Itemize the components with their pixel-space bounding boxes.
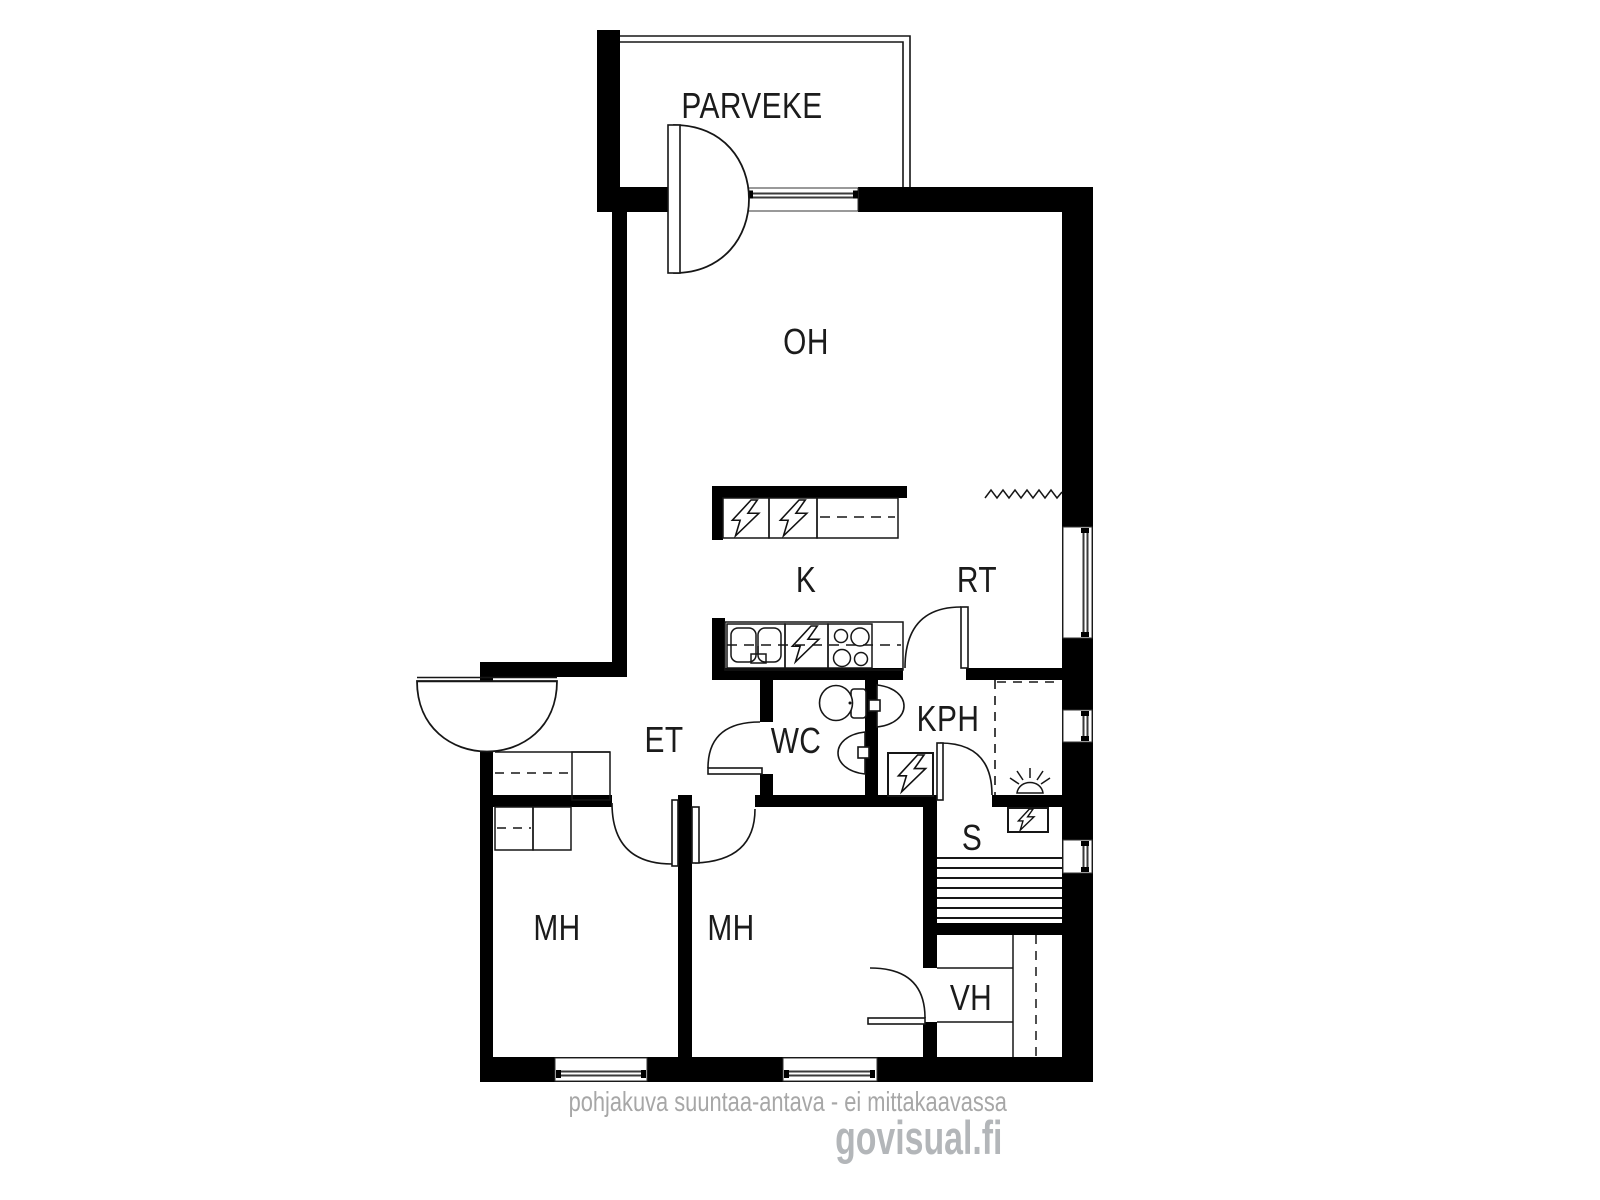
upper-cabinet-row — [712, 486, 907, 540]
toilet — [820, 686, 867, 721]
entrance-door — [417, 678, 557, 752]
cabinet — [817, 498, 898, 538]
electric-appliance-bolt-icon — [732, 500, 759, 536]
wall-vh-west-lower — [923, 1022, 937, 1057]
wall-s-west — [923, 795, 937, 968]
counter-row — [712, 618, 903, 670]
dishwasher — [785, 624, 828, 668]
wall-top-left — [597, 187, 670, 212]
wall-s-vh — [923, 923, 1062, 935]
kitchen-sink — [727, 624, 785, 668]
electric-appliance-bolt-icon — [792, 626, 819, 662]
floor-plan-page: PARVEKE OH K RT ET WC KPH S MH MH VH poh… — [0, 0, 1600, 1200]
wall-wc-west-upper — [760, 677, 773, 722]
balcony-door — [668, 125, 749, 273]
sauna-stove — [1008, 808, 1048, 832]
electric-appliance-bolt-icon — [1018, 809, 1034, 830]
room-label-et: ET — [644, 719, 683, 761]
wall-rt-kph — [966, 668, 1062, 680]
wall-wc-kph — [865, 677, 878, 802]
room-label-vh: VH — [950, 977, 992, 1019]
room-label-s: S — [962, 817, 982, 859]
room-label-k: K — [796, 559, 816, 601]
sauna-benches — [937, 858, 1062, 918]
rt-door — [905, 607, 968, 668]
radiator-zigzag-icon — [985, 490, 1062, 498]
room-label-wc: WC — [771, 720, 822, 762]
washing-machine — [888, 753, 933, 796]
mh-left-door — [612, 800, 678, 866]
electric-appliance-bolt-icon — [780, 500, 807, 536]
window-right-2 — [1063, 710, 1092, 742]
wall-mh-divider — [678, 795, 692, 1057]
room-label-oh: OH — [783, 321, 829, 363]
wall-oh-left — [612, 187, 627, 677]
stove — [828, 624, 872, 668]
wall-entry — [480, 662, 627, 677]
room-label-rt: RT — [957, 559, 997, 601]
window-bottom-2 — [783, 1058, 877, 1081]
window-right-3 — [1063, 840, 1092, 873]
room-label-kph: KPH — [917, 698, 980, 740]
window-bottom-1 — [555, 1058, 647, 1081]
doors — [417, 125, 992, 1024]
mh-right-door — [692, 807, 755, 863]
wall-hall-south-a — [493, 795, 612, 807]
wall-top-right — [858, 187, 1093, 212]
wall-balcony-left — [597, 30, 620, 190]
brand-logo: govisual.fi — [835, 1110, 1002, 1165]
window-top — [747, 188, 858, 211]
floor-drain-icon — [1010, 768, 1050, 793]
wall-hall-south-c — [992, 795, 1062, 807]
room-label-parveke: PARVEKE — [681, 85, 822, 127]
room-label-mh2: MH — [707, 907, 754, 949]
vh-door — [868, 968, 925, 1024]
sauna-door — [937, 743, 992, 800]
room-label-mh1: MH — [533, 907, 580, 949]
window-right-1 — [1063, 527, 1092, 638]
wc-door — [708, 722, 762, 774]
washbasin-wc — [838, 732, 869, 774]
shower-area — [995, 680, 1058, 795]
